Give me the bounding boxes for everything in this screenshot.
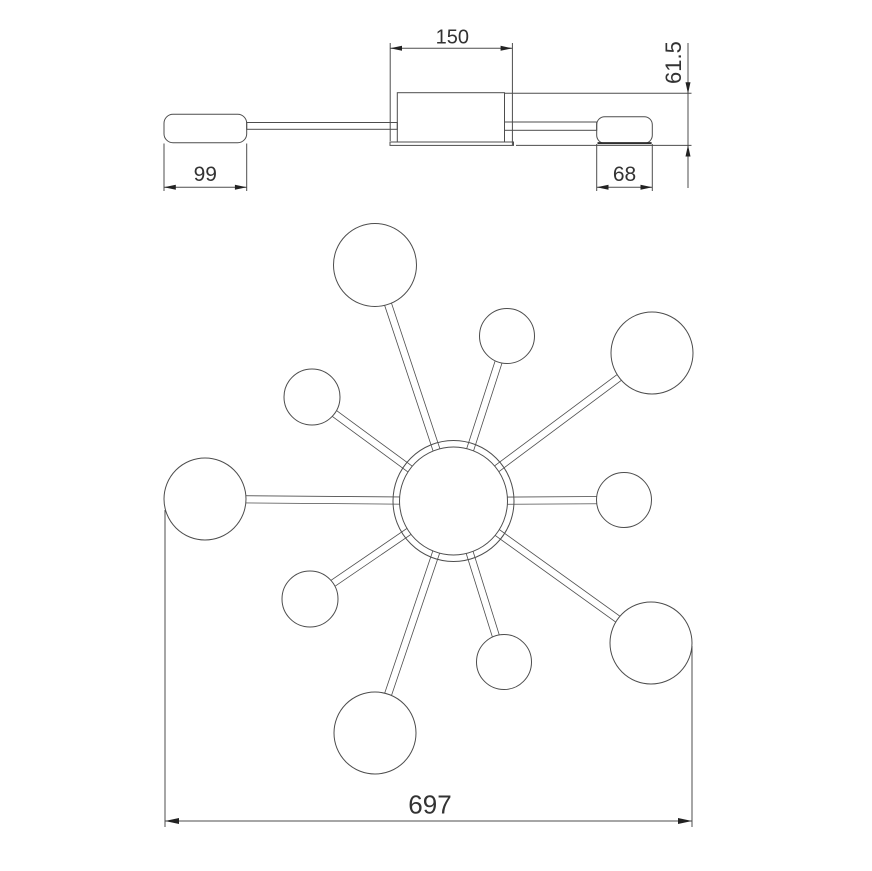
- lamp-shade-small: [282, 571, 338, 627]
- arrowhead: [164, 185, 176, 190]
- dimension-label: 99: [194, 163, 217, 186]
- arrowhead: [165, 818, 179, 824]
- dimension-label: 150: [436, 27, 469, 49]
- lamp-shade-small: [480, 309, 535, 364]
- arrowhead: [501, 46, 513, 51]
- ceiling-lamp-drawing: 150 99 68 61.5: [0, 0, 872, 871]
- arrowhead: [597, 185, 609, 190]
- arrowhead: [641, 185, 653, 190]
- arrowhead: [686, 145, 691, 157]
- lamp-shade-large: [611, 312, 693, 394]
- lamp-shade-large: [334, 692, 416, 774]
- hub-inner-ring: [400, 447, 508, 555]
- side-right-shade: [597, 117, 653, 144]
- side-left-shade: [164, 114, 247, 142]
- dimension-label: 697: [408, 790, 451, 820]
- lamp-shade-large: [164, 458, 246, 540]
- lamp-shade-small: [477, 635, 532, 690]
- arrowhead: [390, 46, 402, 51]
- side-canopy-box: [397, 93, 504, 142]
- arrowhead: [235, 185, 247, 190]
- side-left-arm-rod: [247, 123, 398, 130]
- side-view: 150 99 68 61.5: [164, 27, 692, 192]
- lamp-shade-small: [284, 369, 340, 425]
- lamp-shade-large: [610, 602, 692, 684]
- dimension-label: 68: [613, 163, 636, 186]
- dimension-overall-diameter: 697: [165, 510, 692, 827]
- dimension-fixture-height: 61.5: [505, 41, 692, 188]
- lamp-shade-small: [597, 473, 652, 528]
- arrowhead: [678, 818, 692, 824]
- arrowhead: [686, 82, 691, 94]
- dimension-left-shade-width: 99: [164, 144, 247, 192]
- technical-drawing-page: 150 99 68 61.5: [0, 0, 872, 871]
- dimension-label: 61.5: [661, 41, 686, 84]
- dimension-plate-width: 150: [390, 27, 512, 146]
- side-mounting-plate: [390, 142, 514, 145]
- side-right-arm-rod: [505, 122, 597, 130]
- lamp-shade-large: [334, 224, 417, 307]
- dimension-right-shade-width: 68: [597, 144, 653, 191]
- top-view: 697: [164, 224, 693, 828]
